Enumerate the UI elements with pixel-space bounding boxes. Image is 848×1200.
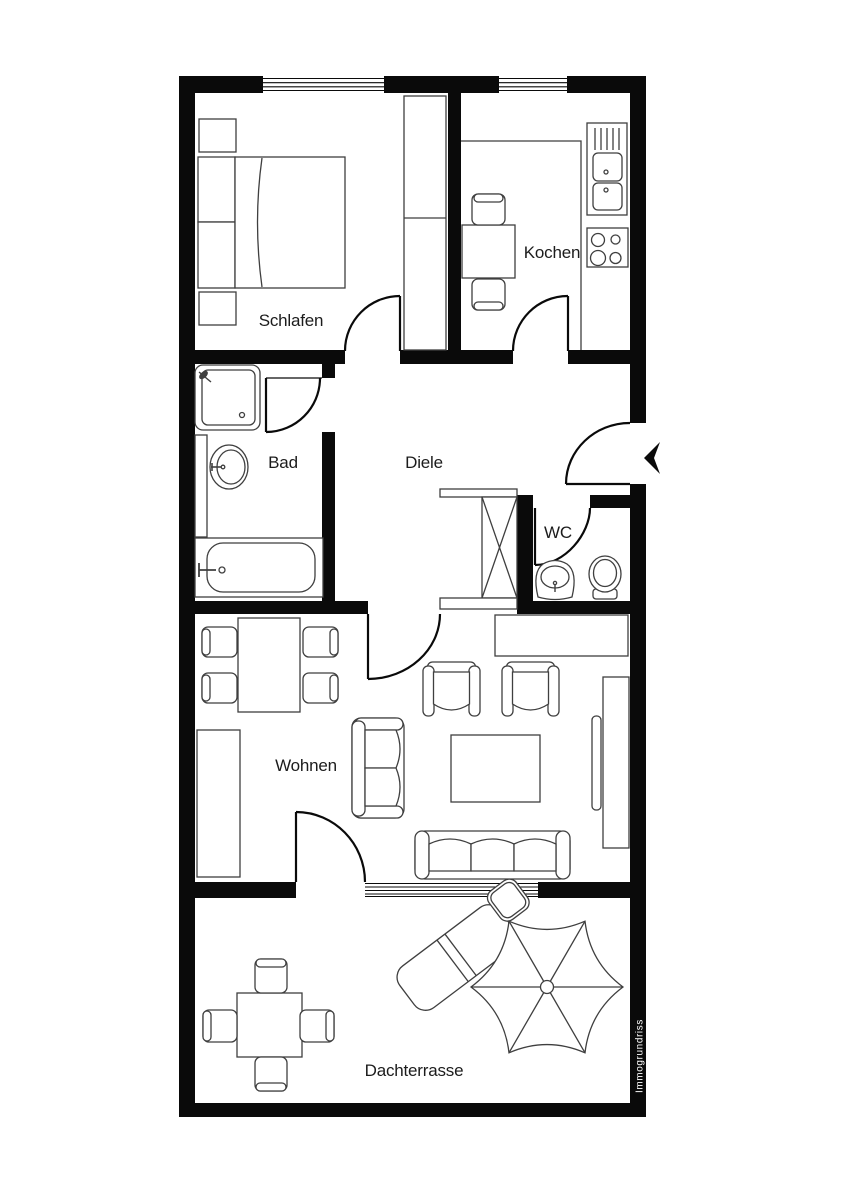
- floor-plan: Schlafen Kochen Bad Diele WC Wohnen Dach…: [0, 0, 848, 1200]
- wc-furniture: [536, 556, 621, 600]
- dining-chair: [303, 673, 338, 703]
- floorplan-canvas: Schlafen Kochen Bad Diele WC Wohnen Dach…: [0, 0, 848, 1200]
- entrance-arrow-icon: [644, 442, 660, 474]
- dining-chair: [303, 627, 338, 657]
- terrace-table: [237, 993, 302, 1057]
- terrace-chair: [300, 1010, 334, 1042]
- kochen-furniture: [461, 123, 628, 350]
- label-bad: Bad: [268, 453, 298, 472]
- bed-icon: [198, 157, 345, 288]
- toilet-icon: [589, 556, 621, 599]
- wohnen-furniture: [197, 615, 629, 879]
- terrace-furniture: [203, 875, 623, 1091]
- nightstand-top: [199, 119, 236, 152]
- terrace-chair: [255, 1057, 287, 1091]
- shower-icon: [195, 365, 260, 430]
- armchair-icon: [423, 662, 480, 716]
- label-kochen: Kochen: [524, 243, 580, 262]
- sideboard-top: [495, 615, 628, 656]
- bath-shelf: [195, 435, 207, 537]
- hall-shelf-top: [440, 489, 517, 497]
- door-entrance: [566, 423, 630, 484]
- label-wc: WC: [544, 523, 572, 542]
- loveseat-icon: [352, 718, 404, 818]
- door-bad: [266, 378, 322, 432]
- washbasin-icon: [210, 445, 248, 489]
- dining-chair: [202, 627, 237, 657]
- hall-wardrobe-icon: [482, 497, 517, 598]
- hall-shelf-bottom: [440, 598, 517, 609]
- label-dachterrasse: Dachterrasse: [365, 1061, 464, 1080]
- kitchen-chair-top: [472, 194, 505, 225]
- dining-table: [238, 618, 300, 712]
- wardrobe-icon: [404, 96, 446, 350]
- terrace-chair: [203, 1010, 237, 1042]
- sideboard-left: [197, 730, 240, 877]
- diele-furniture: [440, 489, 517, 609]
- stove-icon: [587, 228, 628, 267]
- armchair-icon: [502, 662, 559, 716]
- wc-sink-icon: [536, 561, 574, 600]
- door-terrace: [296, 812, 365, 882]
- door-schlafen: [345, 296, 400, 351]
- label-diele: Diele: [405, 453, 443, 472]
- coffee-table: [451, 735, 540, 802]
- tv-icon: [592, 716, 601, 810]
- window-kochen: [499, 79, 567, 91]
- bathtub-icon: [195, 538, 323, 597]
- dining-chair: [202, 673, 237, 703]
- kitchen-chair-bottom: [472, 279, 505, 310]
- door-kochen: [513, 296, 568, 351]
- label-wohnen: Wohnen: [275, 756, 337, 775]
- sofa-icon: [415, 831, 570, 879]
- bad-furniture: [195, 365, 323, 597]
- terrace-chair: [255, 959, 287, 993]
- nightstand-bottom: [199, 292, 236, 325]
- watermark: Immogrundriss: [635, 1019, 646, 1093]
- window-schlafen: [263, 79, 384, 91]
- tv-cabinet: [603, 677, 629, 848]
- label-schlafen: Schlafen: [259, 311, 324, 330]
- kitchen-table: [462, 225, 515, 278]
- kitchen-sink-icon: [587, 123, 627, 215]
